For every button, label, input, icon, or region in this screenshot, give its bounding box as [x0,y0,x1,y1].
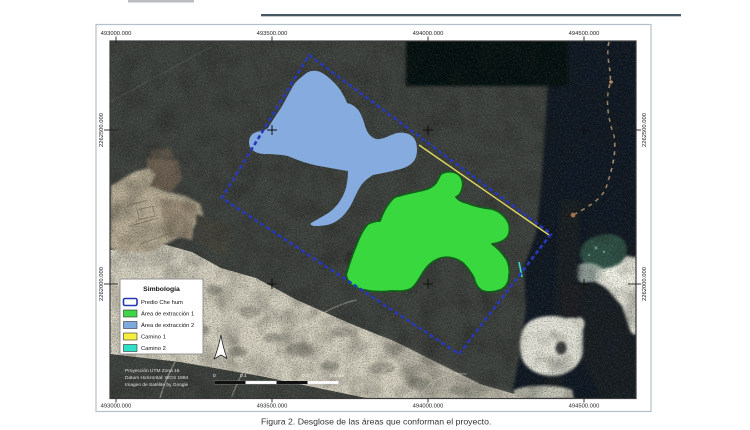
svg-text:494000.000: 494000.000 [413,404,444,410]
svg-text:493500.000: 493500.000 [257,404,288,410]
svg-text:Área de extracción 2: Área de extracción 2 [141,322,194,329]
svg-text:0.4 km: 0.4 km [330,373,344,379]
svg-text:2262000.000: 2262000.000 [642,267,648,301]
svg-text:493000.000: 493000.000 [101,404,132,410]
svg-text:493500.000: 493500.000 [257,31,288,37]
svg-text:Camino 1: Camino 1 [141,335,166,341]
svg-text:Predio Che hum: Predio Che hum [141,300,183,306]
svg-text:Área de extracción 1: Área de extracción 1 [141,311,194,318]
svg-text:Figura 2. Desglose de las área: Figura 2. Desglose de las áreas que conf… [261,417,491,427]
svg-text:Simbología: Simbología [143,286,180,293]
svg-text:Datum Horizontal: WGS 1984: Datum Horizontal: WGS 1984 [125,375,189,381]
svg-text:2262500.000: 2262500.000 [642,113,648,147]
svg-text:Camino 2: Camino 2 [141,346,166,352]
svg-text:494500.000: 494500.000 [569,31,600,37]
svg-text:Imagen de Satélite by Google: Imagen de Satélite by Google [125,382,189,388]
svg-text:2262500.000: 2262500.000 [99,113,105,147]
svg-text:Proyección UTM Zona 16: Proyección UTM Zona 16 [125,368,180,374]
svg-text:0.3: 0.3 [302,373,309,379]
svg-text:494000.000: 494000.000 [413,31,444,37]
svg-text:2262000.000: 2262000.000 [99,267,105,301]
svg-text:493000.000: 493000.000 [101,31,132,37]
svg-text:494500.000: 494500.000 [569,404,600,410]
svg-text:0: 0 [213,373,216,379]
svg-text:0.1: 0.1 [240,373,247,379]
